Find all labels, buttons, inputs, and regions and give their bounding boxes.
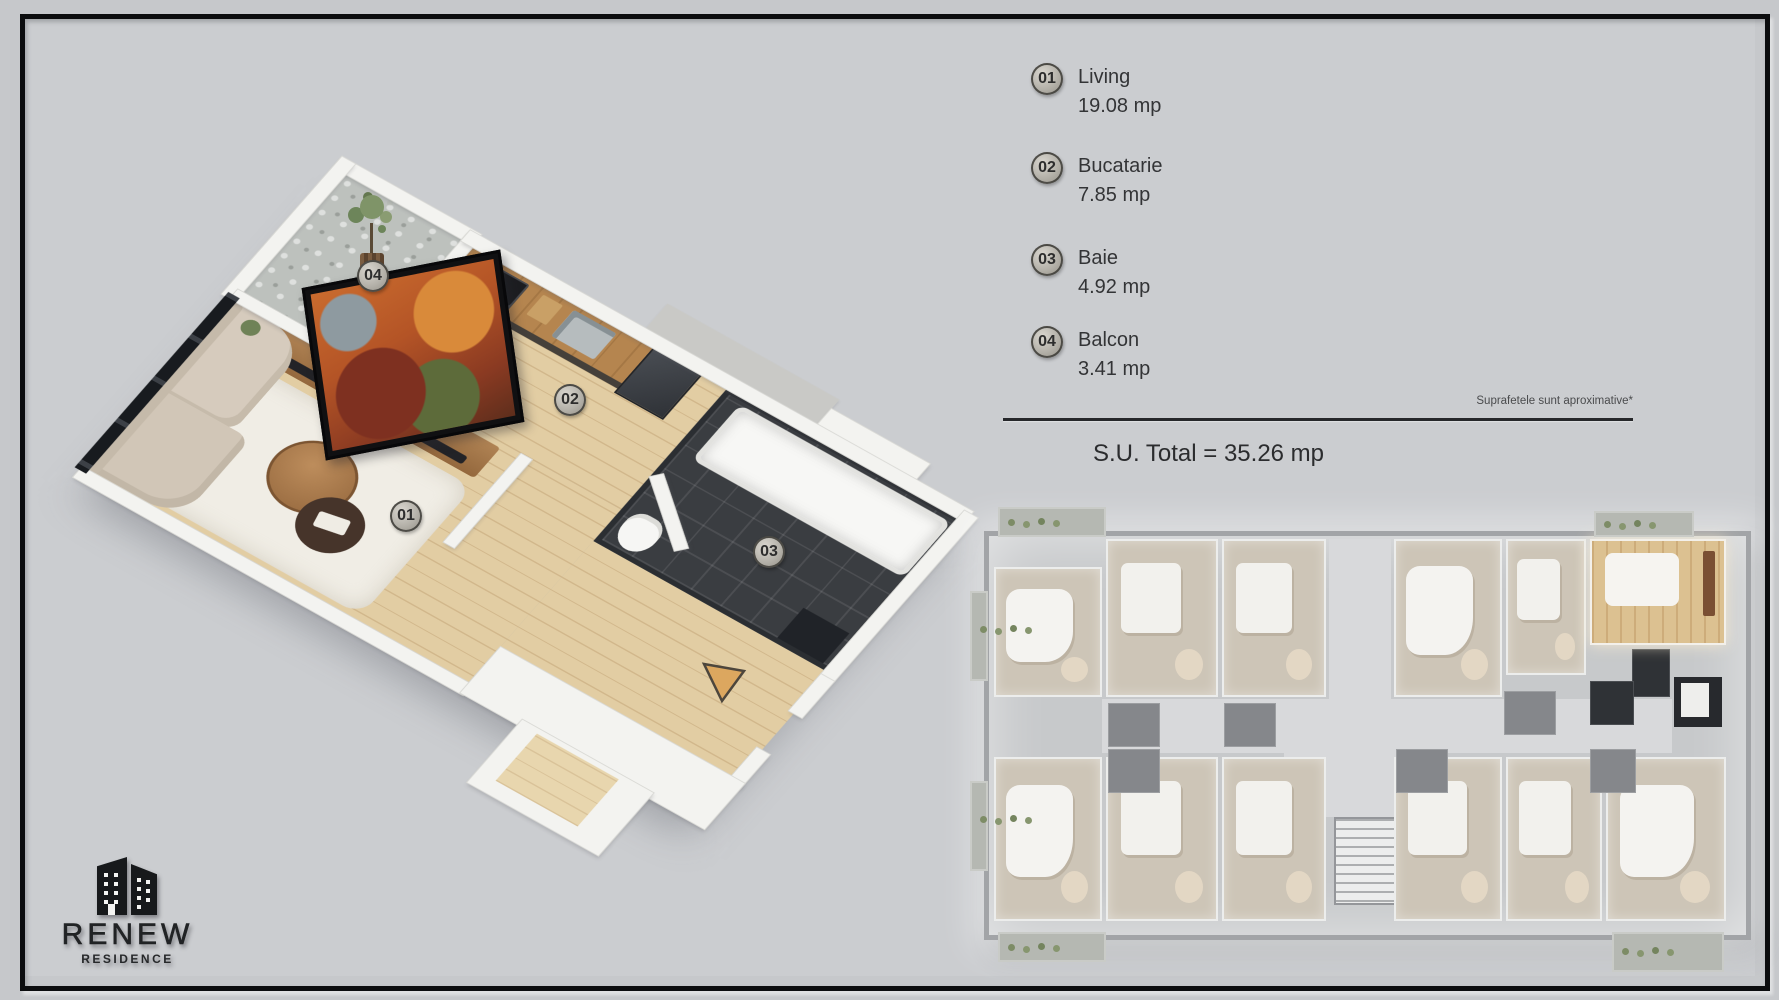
bath-bottom-2 <box>1396 749 1448 793</box>
floorplan-sheet: 01 02 03 04 01 Living19.08 mp 02 Bucatar… <box>0 0 1779 1000</box>
legend-room-name: Balcon <box>1078 326 1150 355</box>
unit-top-4 <box>1394 539 1502 697</box>
unit-bottom-5 <box>1506 757 1602 921</box>
building-floor-plan <box>984 531 1751 940</box>
legend-badge-01: 01 <box>1031 63 1063 95</box>
bath-featured <box>1590 681 1634 725</box>
legend-total: S.U. Total = 35.26 mp <box>1093 440 1324 468</box>
legend-divider <box>1003 418 1633 421</box>
room-badge-03: 03 <box>753 536 785 568</box>
bath-top-3 <box>1504 691 1556 735</box>
tv-picture <box>311 259 516 451</box>
room-badge-04-label: 04 <box>364 267 382 285</box>
legend-row-balcon: 04 Balcon3.41 mp <box>1031 326 1150 384</box>
bath-bottom-3 <box>1590 749 1636 793</box>
corridor-vertical <box>1329 539 1391 699</box>
logo-windows-icon <box>137 878 141 882</box>
legend-badge-02: 02 <box>1031 152 1063 184</box>
legend-badge-04: 04 <box>1031 326 1063 358</box>
legend-room-name: Bucatarie <box>1078 152 1163 181</box>
entry-arrow-icon <box>698 658 748 711</box>
balcony-top-right <box>1594 511 1694 537</box>
unit-top-left-living <box>994 567 1102 697</box>
legend-badge-01-label: 01 <box>1038 70 1056 88</box>
bath-bottom-1 <box>1108 749 1160 793</box>
room-badge-01-label: 01 <box>397 507 415 525</box>
elevator-shaft <box>1674 677 1722 727</box>
unit-top-3 <box>1222 539 1326 697</box>
logo-building-left-icon <box>97 857 127 915</box>
legend-badge-04-label: 04 <box>1038 333 1056 351</box>
logo-door-icon <box>108 904 115 915</box>
elevator-cabin <box>1681 683 1709 717</box>
logo-tagline: RESIDENCE <box>40 952 215 966</box>
room-badge-02: 02 <box>554 384 586 416</box>
legend-room-area: 3.41 mp <box>1078 355 1150 384</box>
staircase <box>1334 817 1398 905</box>
bath-top-2 <box>1224 703 1276 747</box>
unit-bottom-left-living <box>994 757 1102 921</box>
bath-top-1 <box>1108 703 1160 747</box>
legend-room-area: 19.08 mp <box>1078 92 1161 121</box>
legend-badge-03-label: 03 <box>1038 251 1056 269</box>
legend-room-name: Baie <box>1078 244 1150 273</box>
unit-featured-apartment <box>1590 539 1726 645</box>
legend-disclaimer: Suprafetele sunt aproximative* <box>1003 395 1633 407</box>
balcony-left-upper <box>970 591 988 681</box>
legend-room-area: 7.85 mp <box>1078 181 1163 210</box>
legend-row-living: 01 Living19.08 mp <box>1031 63 1161 121</box>
balcony-left-lower <box>970 781 988 871</box>
legend-room-name: Living <box>1078 63 1161 92</box>
legend-room-area: 4.92 mp <box>1078 273 1150 302</box>
legend-row-baie: 03 Baie4.92 mp <box>1031 244 1150 302</box>
room-badge-03-label: 03 <box>760 543 778 561</box>
room-badge-01: 01 <box>390 500 422 532</box>
legend-badge-02-label: 02 <box>1038 159 1056 177</box>
balcony-bottom-right <box>1612 932 1724 972</box>
balcony-top-left <box>998 507 1106 537</box>
legend-row-bucatarie: 02 Bucatarie7.85 mp <box>1031 152 1163 210</box>
legend-badge-03: 03 <box>1031 244 1063 276</box>
plant-foliage <box>360 195 384 219</box>
balcony-bottom-left <box>998 932 1106 962</box>
room-badge-02-label: 02 <box>561 391 579 409</box>
logo-name: RENEW <box>40 918 215 952</box>
building-entry-hall <box>1632 649 1670 697</box>
room-badge-04: 04 <box>357 260 389 292</box>
logo-windows-icon <box>104 873 108 877</box>
corridor-horizontal <box>1102 699 1672 753</box>
unit-top-2 <box>1106 539 1218 697</box>
plant-trunk <box>370 223 373 255</box>
unit-top-5 <box>1506 539 1586 675</box>
unit-bottom-3 <box>1222 757 1326 921</box>
